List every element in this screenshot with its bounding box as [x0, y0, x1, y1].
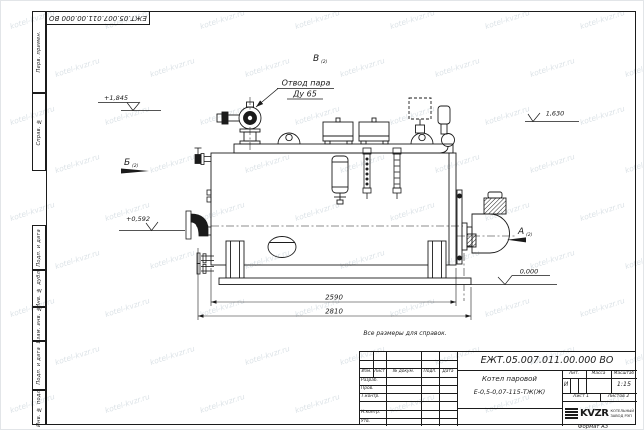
col-list: Лист	[373, 368, 386, 376]
col-podp: Подп.	[421, 368, 439, 376]
col-data: Дата	[439, 368, 457, 376]
kvzr-logo-text: KVZR	[580, 408, 608, 419]
format-label: Формат А3	[549, 424, 637, 430]
rotated-doc-number: ЕЖТ.05.007.011.00.000 ВО	[49, 14, 147, 22]
margin-cell-inv-podl: Инв. № подл.	[32, 390, 46, 425]
margin-cell-sprav: Справ. №	[32, 93, 46, 171]
company-name: КОТЕЛЬНЫЙ ЗАВОД РЭП	[610, 409, 634, 417]
margin-cell-podp-data-1: Подп. и дата	[32, 225, 46, 270]
row-utv: Утв.	[361, 418, 386, 426]
title-block: Изм. Лист № докум. Подп. Дата Разраб. Пр…	[359, 351, 636, 425]
margin-cell-perv-primen: Перв. примен.	[32, 11, 46, 93]
row-prov: Пров.	[361, 385, 386, 393]
margin-cell-inv-dubl: Инв. № дубл.	[32, 270, 46, 307]
kvzr-logo-icon	[565, 408, 578, 419]
scale-value: 1:15	[611, 378, 637, 393]
rotated-doc-number-box: ЕЖТ.05.007.011.00.000 ВО	[46, 11, 150, 25]
lit-value: И	[562, 378, 570, 393]
drawing-sheet: kotel-kvzr.rukotel-kvzr.rukotel-kvzr.ruk…	[0, 0, 644, 430]
row-tkontr: Т.контр.	[361, 393, 386, 401]
sheets-total: Листов 2	[600, 393, 637, 401]
scale-label: Масштаб	[611, 370, 637, 378]
doc-number: ЕЖТ.05.007.011.00.000 ВО	[457, 352, 637, 370]
margin-cell-podp-data-2: Подп. и дата	[32, 341, 46, 390]
margin-cell-vzam-inv: Взам. инв. №	[32, 307, 46, 341]
company-cell: KVZR КОТЕЛЬНЫЙ ЗАВОД РЭП	[562, 401, 637, 426]
mass-label: Масса	[586, 370, 611, 378]
row-nkontr: Н.контр.	[361, 410, 386, 418]
lit-label: Лит.	[562, 370, 586, 378]
sheet-number: Лист 1	[562, 393, 600, 401]
row-razrab: Разраб.	[361, 377, 386, 385]
col-izm: Изм.	[360, 368, 373, 376]
product-type: Е-0,5-0,07-115-ТЖ(Ж)	[457, 386, 562, 400]
col-dokum: № докум.	[386, 368, 421, 376]
